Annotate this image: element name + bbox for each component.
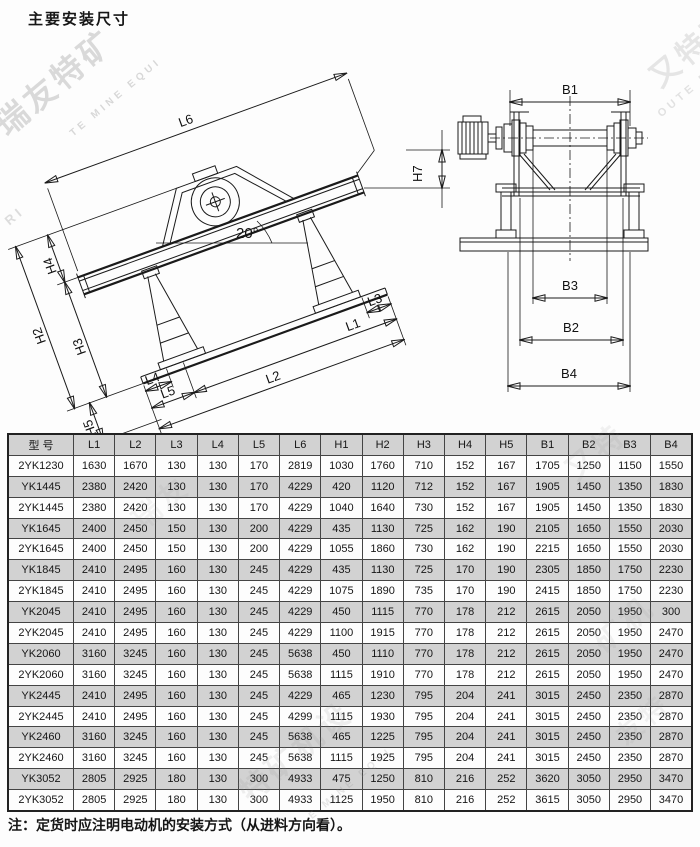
dimension-cell: 2400 <box>74 518 115 539</box>
model-cell: YK1445 <box>8 476 74 497</box>
dimension-cell: 152 <box>444 455 485 476</box>
dimension-cell: 130 <box>197 455 238 476</box>
dimension-cell: 1115 <box>321 748 362 769</box>
dimension-cell: 435 <box>321 518 362 539</box>
column-header: 型 号 <box>8 434 74 455</box>
dimension-cell: 245 <box>238 560 279 581</box>
dimension-cell: 4229 <box>280 685 321 706</box>
column-header: L2 <box>115 434 156 455</box>
dimension-cell: 170 <box>444 581 485 602</box>
dimension-cell: 130 <box>197 476 238 497</box>
dimension-cell: 130 <box>197 518 238 539</box>
dimension-cell: 130 <box>197 623 238 644</box>
dimension-cell: 2925 <box>115 769 156 790</box>
dimension-cell: 160 <box>156 685 197 706</box>
dimension-cell: 1450 <box>568 497 609 518</box>
dimension-cell: 2495 <box>115 706 156 727</box>
dimension-cell: 2615 <box>527 623 568 644</box>
dimension-cell: 2410 <box>74 685 115 706</box>
dimension-cell: 5638 <box>280 643 321 664</box>
dimension-cell: 241 <box>486 727 527 748</box>
table-row: YK24603160324516013024556384651225795204… <box>8 727 692 748</box>
dimension-cell: 130 <box>197 539 238 560</box>
dimension-cell: 130 <box>156 497 197 518</box>
dimension-cell: 3245 <box>115 664 156 685</box>
table-row: 2YK2460316032451601302455638111519257952… <box>8 748 692 769</box>
dimension-cell: 170 <box>444 560 485 581</box>
model-cell: 2YK2060 <box>8 664 74 685</box>
dimension-cell: 2495 <box>115 623 156 644</box>
dimension-cell: 2050 <box>568 664 609 685</box>
dimension-cell: 4229 <box>280 560 321 581</box>
dimension-cell: 3160 <box>74 727 115 748</box>
dimension-cell: 3050 <box>568 769 609 790</box>
dimension-cell: 2819 <box>280 455 321 476</box>
dimension-cell: 204 <box>444 706 485 727</box>
dimension-cell: 770 <box>403 623 444 644</box>
dimension-cell: 2950 <box>609 790 650 811</box>
dimension-cell: 3245 <box>115 748 156 769</box>
dimension-cell: 5638 <box>280 748 321 769</box>
dimension-cell: 1915 <box>362 623 403 644</box>
dim-label-l4: L4 <box>143 369 162 388</box>
dimension-cell: 2615 <box>527 602 568 623</box>
dimension-cell: 3470 <box>651 790 692 811</box>
dimension-cell: 1670 <box>115 455 156 476</box>
dimension-cell: 2410 <box>74 602 115 623</box>
dimension-cell: 1910 <box>362 664 403 685</box>
dimension-cell: 1550 <box>651 455 692 476</box>
dimension-cell: 1905 <box>527 497 568 518</box>
table-row: 2YK1230163016701301301702819103017607101… <box>8 455 692 476</box>
table-row: YK20452410249516013024542294501115770178… <box>8 602 692 623</box>
dimension-cell: 178 <box>444 643 485 664</box>
dimension-cell: 1100 <box>321 623 362 644</box>
dimension-cell: 3015 <box>527 706 568 727</box>
column-header: H1 <box>321 434 362 455</box>
dimension-cell: 3015 <box>527 727 568 748</box>
dimension-cell: 167 <box>486 455 527 476</box>
dimension-cell: 245 <box>238 581 279 602</box>
angle-label: 20° <box>236 225 259 242</box>
dimension-cell: 212 <box>486 623 527 644</box>
model-cell: 2YK3052 <box>8 790 74 811</box>
column-header: B2 <box>568 434 609 455</box>
dimension-cell: 216 <box>444 790 485 811</box>
dimension-cell: 1760 <box>362 455 403 476</box>
table-row: YK24452410249516013024542294651230795204… <box>8 685 692 706</box>
dimension-cell: 4229 <box>280 602 321 623</box>
dimension-cell: 475 <box>321 769 362 790</box>
dimension-cell: 795 <box>403 706 444 727</box>
dimension-cell: 2450 <box>568 727 609 748</box>
dimension-cell: 2805 <box>74 769 115 790</box>
dimension-cell: 160 <box>156 581 197 602</box>
column-header: L5 <box>238 434 279 455</box>
dimension-cell: 2420 <box>115 497 156 518</box>
column-header: L4 <box>197 434 238 455</box>
dimension-cell: 2470 <box>651 664 692 685</box>
dimension-cell: 204 <box>444 685 485 706</box>
dimension-cell: 3160 <box>74 748 115 769</box>
model-cell: YK1645 <box>8 518 74 539</box>
model-cell: 2YK2460 <box>8 748 74 769</box>
table-row: 2YK1845241024951601302454229107518907351… <box>8 581 692 602</box>
dimension-cell: 130 <box>197 748 238 769</box>
dimension-cell: 1830 <box>651 497 692 518</box>
dimension-cell: 1250 <box>362 769 403 790</box>
dimension-cell: 1225 <box>362 727 403 748</box>
dimension-cell: 2495 <box>115 602 156 623</box>
dimension-cell: 190 <box>486 560 527 581</box>
table-row: 2YK2045241024951601302454229110019157701… <box>8 623 692 644</box>
column-header: H3 <box>403 434 444 455</box>
dimension-cell: 2495 <box>115 685 156 706</box>
dimension-cell: 710 <box>403 455 444 476</box>
header-row: 型 号L1L2L3L4L5L6H1H2H3H4H5B1B2B3B4 <box>8 434 692 455</box>
dimension-cell: 2870 <box>651 706 692 727</box>
dimension-cell: 130 <box>197 790 238 811</box>
dimension-cell: 3470 <box>651 769 692 790</box>
dimension-cell: 2410 <box>74 623 115 644</box>
dimension-cell: 1120 <box>362 476 403 497</box>
dimension-cell: 1850 <box>568 581 609 602</box>
dimension-cell: 2380 <box>74 476 115 497</box>
page: 主要安装尺寸 <box>0 0 700 847</box>
dimension-cell: 216 <box>444 769 485 790</box>
table-row: 2YK3052280529251801303004933112519508102… <box>8 790 692 811</box>
dim-label-l6: L6 <box>176 111 195 130</box>
table-row: YK16452400245015013020042294351130725162… <box>8 518 692 539</box>
dimension-cell: 4229 <box>280 581 321 602</box>
dimension-cell: 4933 <box>280 769 321 790</box>
dimension-cell: 130 <box>197 560 238 581</box>
column-header: B3 <box>609 434 650 455</box>
dimension-cell: 162 <box>444 518 485 539</box>
dimension-cell: 245 <box>238 748 279 769</box>
dimension-cell: 1350 <box>609 476 650 497</box>
model-cell: YK3052 <box>8 769 74 790</box>
dimension-cell: 130 <box>197 769 238 790</box>
dimension-cell: 2410 <box>74 581 115 602</box>
page-title: 主要安装尺寸 <box>28 8 130 29</box>
dimension-cell: 150 <box>156 518 197 539</box>
dimension-cell: 1250 <box>568 455 609 476</box>
model-cell: YK1845 <box>8 560 74 581</box>
dimension-cell: 2615 <box>527 664 568 685</box>
dimension-cell: 160 <box>156 560 197 581</box>
dimension-cell: 2495 <box>115 581 156 602</box>
dimension-cell: 3620 <box>527 769 568 790</box>
model-cell: 2YK2445 <box>8 706 74 727</box>
dimension-cell: 178 <box>444 623 485 644</box>
dimension-cell: 2950 <box>609 769 650 790</box>
table-row: 2YK1445238024201301301704229104016407301… <box>8 497 692 518</box>
dimension-cell: 2615 <box>527 643 568 664</box>
dimension-cell: 450 <box>321 602 362 623</box>
dimension-cell: 730 <box>403 539 444 560</box>
model-cell: YK2460 <box>8 727 74 748</box>
dimension-cell: 1075 <box>321 581 362 602</box>
dimension-cell: 1750 <box>609 560 650 581</box>
dimension-cell: 4229 <box>280 539 321 560</box>
dimension-cell: 212 <box>486 643 527 664</box>
dimension-cell: 2350 <box>609 706 650 727</box>
dimension-cell: 4229 <box>280 476 321 497</box>
dimension-cell: 2350 <box>609 727 650 748</box>
dimension-cell: 1630 <box>74 455 115 476</box>
dimension-cell: 2230 <box>651 581 692 602</box>
dimension-cell: 245 <box>238 623 279 644</box>
dimension-cell: 200 <box>238 539 279 560</box>
table-row: YK30522805292518013030049334751250810216… <box>8 769 692 790</box>
dimension-cell: 167 <box>486 497 527 518</box>
dimension-cell: 2350 <box>609 685 650 706</box>
model-cell: 2YK2045 <box>8 623 74 644</box>
dimension-cell: 3245 <box>115 727 156 748</box>
dimension-cell: 1115 <box>321 664 362 685</box>
dimension-cell: 245 <box>238 706 279 727</box>
dimension-cell: 3160 <box>74 664 115 685</box>
dimension-cell: 190 <box>486 539 527 560</box>
dim-label-l2: L2 <box>264 368 283 387</box>
column-header: L6 <box>280 434 321 455</box>
dimension-cell: 3050 <box>568 790 609 811</box>
column-header: B1 <box>527 434 568 455</box>
dimension-cell: 1115 <box>321 706 362 727</box>
dimension-cell: 1640 <box>362 497 403 518</box>
dimension-cell: 245 <box>238 664 279 685</box>
model-cell: 2YK1445 <box>8 497 74 518</box>
column-header: L1 <box>74 434 115 455</box>
dimension-cell: 130 <box>197 685 238 706</box>
model-cell: 2YK1230 <box>8 455 74 476</box>
dimension-cell: 450 <box>321 643 362 664</box>
dim-label-b4: B4 <box>561 366 577 381</box>
dimension-cell: 2410 <box>74 706 115 727</box>
model-cell: 2YK1845 <box>8 581 74 602</box>
model-cell: YK2060 <box>8 643 74 664</box>
dimension-cell: 5638 <box>280 664 321 685</box>
dimension-cell: 465 <box>321 685 362 706</box>
dimension-cell: 130 <box>197 706 238 727</box>
dimension-cell: 2450 <box>115 518 156 539</box>
dimension-cell: 130 <box>197 497 238 518</box>
dimension-cell: 1650 <box>568 539 609 560</box>
dimension-cell: 3245 <box>115 643 156 664</box>
dimension-cell: 160 <box>156 706 197 727</box>
dim-label-l1: L1 <box>344 315 363 334</box>
dimension-cell: 2450 <box>115 539 156 560</box>
dimension-cell: 1950 <box>609 623 650 644</box>
dimension-cell: 770 <box>403 602 444 623</box>
dimension-cell: 4299 <box>280 706 321 727</box>
dimension-cell: 1230 <box>362 685 403 706</box>
dimension-cell: 2420 <box>115 476 156 497</box>
dimension-cell: 1450 <box>568 476 609 497</box>
dimension-cell: 795 <box>403 685 444 706</box>
dimension-cell: 1115 <box>362 602 403 623</box>
dimension-cell: 2305 <box>527 560 568 581</box>
dimension-cell: 3160 <box>74 643 115 664</box>
dimension-cell: 252 <box>486 790 527 811</box>
dim-label-h7: H7 <box>410 165 425 182</box>
dimension-cell: 241 <box>486 706 527 727</box>
dimension-cell: 2215 <box>527 539 568 560</box>
dimension-cell: 252 <box>486 769 527 790</box>
dimension-cell: 245 <box>238 685 279 706</box>
dimension-cell: 2230 <box>651 560 692 581</box>
dimension-cell: 130 <box>197 643 238 664</box>
dimension-cell: 3015 <box>527 685 568 706</box>
dimension-cell: 712 <box>403 476 444 497</box>
dimension-cell: 810 <box>403 769 444 790</box>
dimension-cell: 130 <box>197 664 238 685</box>
dimension-cell: 2805 <box>74 790 115 811</box>
dimension-cell: 180 <box>156 769 197 790</box>
dimension-cell: 1040 <box>321 497 362 518</box>
dimension-cell: 1130 <box>362 518 403 539</box>
dimension-cell: 1125 <box>321 790 362 811</box>
dimension-cell: 4229 <box>280 497 321 518</box>
column-header: H4 <box>444 434 485 455</box>
dimension-cell: 300 <box>651 602 692 623</box>
dimension-cell: 1130 <box>362 560 403 581</box>
column-header: L3 <box>156 434 197 455</box>
dimension-cell: 170 <box>238 497 279 518</box>
dimension-cell: 1950 <box>362 790 403 811</box>
dimension-cell: 160 <box>156 727 197 748</box>
dimension-cell: 1150 <box>609 455 650 476</box>
dimension-cell: 1030 <box>321 455 362 476</box>
dimension-cell: 810 <box>403 790 444 811</box>
dimension-cell: 1350 <box>609 497 650 518</box>
dimension-cell: 4229 <box>280 623 321 644</box>
dimension-cell: 1890 <box>362 581 403 602</box>
table-row: YK14452380242013013017042294201120712152… <box>8 476 692 497</box>
dimension-cell: 150 <box>156 539 197 560</box>
dimension-cell: 2030 <box>651 539 692 560</box>
dimension-cell: 130 <box>197 581 238 602</box>
dimension-cell: 725 <box>403 560 444 581</box>
dimension-cell: 2050 <box>568 643 609 664</box>
dimension-cell: 2050 <box>568 602 609 623</box>
dimension-cell: 1550 <box>609 518 650 539</box>
dimension-cell: 190 <box>486 581 527 602</box>
model-cell: 2YK1645 <box>8 539 74 560</box>
dim-label-b3: B3 <box>562 278 578 293</box>
dimension-cell: 212 <box>486 602 527 623</box>
dimension-cell: 167 <box>486 476 527 497</box>
dimension-cell: 2400 <box>74 539 115 560</box>
dimension-cell: 1860 <box>362 539 403 560</box>
dim-label-l3: L3 <box>365 290 384 309</box>
dimension-cell: 2870 <box>651 685 692 706</box>
dimension-cell: 212 <box>486 664 527 685</box>
dimension-cell: 2870 <box>651 727 692 748</box>
dimension-cell: 152 <box>444 476 485 497</box>
dimension-cell: 1550 <box>609 539 650 560</box>
dimension-cell: 4933 <box>280 790 321 811</box>
dimension-cell: 735 <box>403 581 444 602</box>
dimension-cell: 160 <box>156 602 197 623</box>
dimension-cell: 204 <box>444 748 485 769</box>
dimension-cell: 130 <box>197 727 238 748</box>
dimension-cell: 2105 <box>527 518 568 539</box>
dimension-cell: 2925 <box>115 790 156 811</box>
dimension-cell: 1930 <box>362 706 403 727</box>
dimension-cell: 2495 <box>115 560 156 581</box>
table-row: 2YK2445241024951601302454299111519307952… <box>8 706 692 727</box>
dimension-cell: 420 <box>321 476 362 497</box>
dimension-cell: 3015 <box>527 748 568 769</box>
dimension-cell: 2380 <box>74 497 115 518</box>
dimension-cell: 190 <box>486 518 527 539</box>
dimension-cell: 180 <box>156 790 197 811</box>
dimension-cell: 2030 <box>651 518 692 539</box>
column-header: B4 <box>651 434 692 455</box>
dimension-cell: 770 <box>403 664 444 685</box>
dimension-cell: 245 <box>238 602 279 623</box>
dimension-cell: 2415 <box>527 581 568 602</box>
table-row: 2YK1645240024501501302004229105518607301… <box>8 539 692 560</box>
dimensions-table: 型 号L1L2L3L4L5L6H1H2H3H4H5B1B2B3B42YK1230… <box>7 433 693 812</box>
dimension-cell: 770 <box>403 643 444 664</box>
dimension-cell: 1850 <box>568 560 609 581</box>
table-row: YK20603160324516013024556384501110770178… <box>8 643 692 664</box>
dimension-cell: 435 <box>321 560 362 581</box>
dimension-cell: 245 <box>238 643 279 664</box>
dimension-cell: 2870 <box>651 748 692 769</box>
model-cell: YK2445 <box>8 685 74 706</box>
dimension-cell: 178 <box>444 602 485 623</box>
dimension-cell: 160 <box>156 623 197 644</box>
dimension-cell: 300 <box>238 769 279 790</box>
dimension-cell: 241 <box>486 685 527 706</box>
side-view-diagram: L6 H2 H4 H3 H5 L4 L3 L5 <box>8 38 453 433</box>
dimension-cell: 2470 <box>651 623 692 644</box>
column-header: H2 <box>362 434 403 455</box>
dimension-cell: 4229 <box>280 518 321 539</box>
dimension-cell: 130 <box>197 602 238 623</box>
dim-label-b2: B2 <box>563 320 579 335</box>
dimension-cell: 795 <box>403 727 444 748</box>
dimension-cell: 200 <box>238 518 279 539</box>
dimension-cell: 2450 <box>568 706 609 727</box>
dimension-cell: 170 <box>238 455 279 476</box>
dimension-cell: 2410 <box>74 560 115 581</box>
dimension-cell: 1830 <box>651 476 692 497</box>
dimension-cell: 795 <box>403 748 444 769</box>
dimension-cell: 465 <box>321 727 362 748</box>
dimension-cell: 178 <box>444 664 485 685</box>
dimension-cell: 3615 <box>527 790 568 811</box>
dimension-cell: 245 <box>238 727 279 748</box>
table-row: 2YK2060316032451601302455638111519107701… <box>8 664 692 685</box>
dimension-cell: 160 <box>156 643 197 664</box>
dimension-cell: 2050 <box>568 623 609 644</box>
dimension-cell: 2450 <box>568 685 609 706</box>
dimension-cell: 162 <box>444 539 485 560</box>
dimension-cell: 241 <box>486 748 527 769</box>
dimension-cell: 5638 <box>280 727 321 748</box>
dimension-cell: 1905 <box>527 476 568 497</box>
model-cell: YK2045 <box>8 602 74 623</box>
dimension-cell: 1650 <box>568 518 609 539</box>
dimension-cell: 1705 <box>527 455 568 476</box>
dimension-cell: 1950 <box>609 643 650 664</box>
dimension-cell: 725 <box>403 518 444 539</box>
